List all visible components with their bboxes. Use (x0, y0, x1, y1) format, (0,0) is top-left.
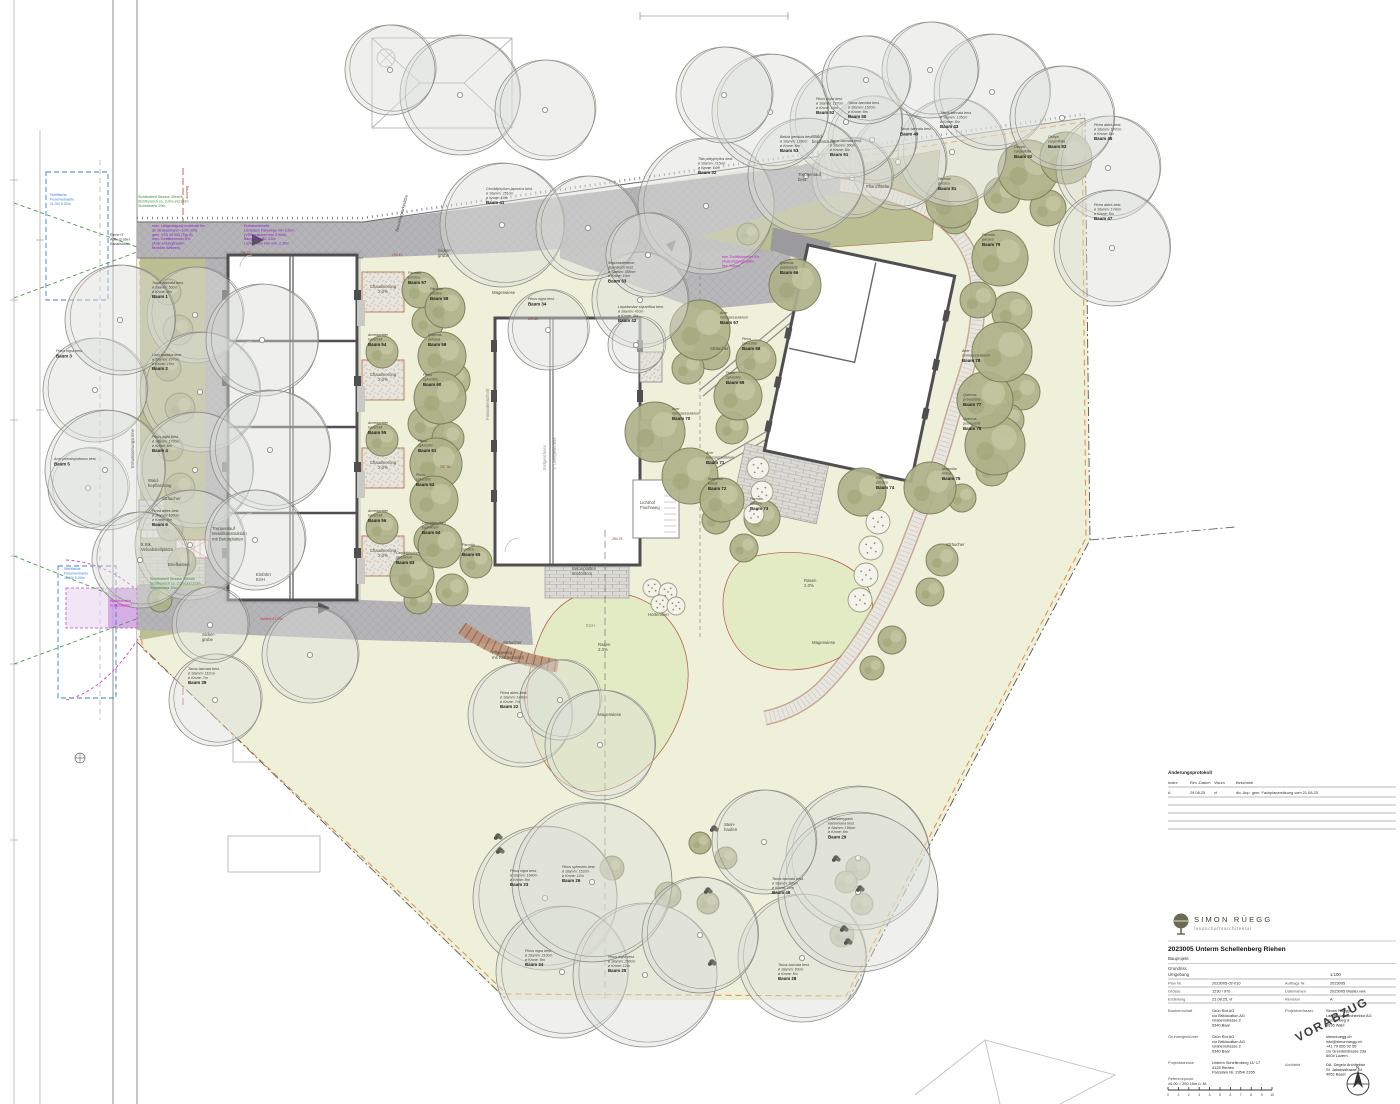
area-label: mit Rindenmulch (492, 655, 525, 660)
note-text: Sichtbereich ca. 3.0m und 3.0m (138, 199, 189, 203)
shrub-speckled (866, 510, 890, 534)
tree-trunk (92, 387, 97, 392)
area-label: bepflanzung (812, 139, 836, 144)
area-label: Veloabstellplätze (141, 547, 174, 552)
scale-number: 5 (1219, 1093, 1221, 1097)
note-text: Stellfläche (64, 567, 81, 571)
tree-species: Parrotia (938, 177, 951, 181)
tree-species: Pinus (726, 371, 735, 375)
shrub-speckled (859, 536, 883, 560)
field-value: 2023005 (1330, 981, 1345, 986)
note-text: (VSS erlauben min 2.90m) (244, 233, 286, 237)
tree-species: Parrotia (750, 497, 763, 501)
tree-number: Baum 68 (742, 346, 761, 351)
note-text: max. Gefällsbrecher 6% (152, 237, 191, 241)
tree-canopy-shade (433, 306, 445, 318)
logo-subtitle: landschaftsarchitektur (1194, 926, 1252, 931)
tree-species: ø Stamm: 107cm (152, 357, 179, 361)
note-text: Rinne O (110, 233, 123, 237)
tree-species: Pinus nigra best. (56, 349, 83, 353)
tree-canopy-shade (424, 395, 440, 411)
tree-species: Taxus baccata best. (848, 101, 880, 105)
field-value: 2023005 Master.vwx (1330, 989, 1366, 994)
tree-number: Baum 73 (750, 506, 769, 511)
tree-species: Pinus nigra best. (525, 949, 552, 953)
tree-number: Baum 74 (876, 485, 895, 490)
scale-number: 2 (1188, 1093, 1190, 1097)
tree-number: Baum 72 (708, 486, 727, 491)
note-text: (Ausrundungsradien (722, 259, 754, 263)
tree-canopy-shade (409, 599, 417, 607)
tree-number: Baum 54 (368, 342, 387, 347)
tree-number: Baum 23 (510, 882, 529, 887)
tree-species: Cercidiphyllum (396, 551, 420, 555)
area-label: 1. Obergeschoss (552, 438, 557, 470)
tree-species: ø Krone: 14m (816, 106, 838, 110)
tree-species: Acer (961, 349, 970, 353)
tree-species: ø Stamm: 148cm (500, 695, 527, 699)
tree-canopy-highlight (446, 427, 459, 440)
tree-canopy-highlight (696, 310, 721, 335)
tree-species: ø Stamm: 164cm (510, 873, 537, 877)
area-label: 50/40/3cm (572, 571, 592, 576)
tree-trunk (799, 955, 804, 960)
scale-number: 1 (1178, 1093, 1180, 1097)
tree-species: japonicum (395, 555, 412, 559)
tree-canopy-shade (372, 526, 382, 536)
tree-number: Baum 24 (525, 962, 544, 967)
party-label: Projektverfasser (1285, 1008, 1314, 1013)
tree-number: Baum 57 (408, 280, 427, 285)
tree-number: Baum 71 (706, 460, 725, 465)
revision-cell: 29.08.25 (1190, 790, 1205, 795)
tree-canopy-shade (932, 558, 942, 568)
tree-trunk (197, 389, 202, 394)
tree-species: ø Stamm: 112cm (188, 671, 215, 675)
tree-species: carpinifolia (1014, 149, 1031, 153)
tree-species: Parrotia (982, 233, 995, 237)
tree-trunk (207, 622, 212, 627)
revision-header: Index (1168, 780, 1178, 785)
tree-number: Baum 34 (528, 301, 547, 306)
tree-canopy-shade (636, 429, 654, 447)
scale-number: 6 (1230, 1093, 1232, 1097)
tree-canopy-shade (967, 298, 978, 309)
elevation-mark: 294.50 (528, 317, 538, 321)
tree-trunk (597, 742, 602, 747)
tree-species: sylvestris (423, 377, 438, 381)
shrub-speckled (848, 588, 872, 612)
tree-species: lamarckii (368, 337, 382, 341)
tree-species: ø Krone: 8m (940, 120, 960, 124)
note-text: ab Strassenrand +10% (9%) (152, 228, 197, 232)
tree-trunk (557, 697, 562, 702)
area-label: Sträucher (162, 496, 181, 501)
tree-number: Baum 26 (562, 878, 581, 883)
tree-number: Baum 64 (422, 530, 441, 535)
area-label: best. (798, 177, 807, 182)
tree-species: ø Stamm: 388cm (608, 270, 635, 274)
area-label: Magerwiese (598, 712, 622, 717)
tree-trunk (499, 222, 504, 227)
tree-species: Picea abies best. (500, 691, 527, 695)
tree-canopy-shade (708, 498, 721, 511)
project-phase: Bauprojekt (1168, 956, 1189, 961)
area-label: Sträucher (946, 542, 965, 547)
area-label: Sträucher (503, 640, 522, 645)
tree-number: Baum 32 (698, 170, 717, 175)
scale-number: 4 (1209, 1093, 1211, 1097)
tree-number: Baum 6 (152, 522, 168, 527)
area-label: bepflanzung (148, 483, 172, 488)
tree-number: Baum 79 (982, 242, 1001, 247)
tree-species: ø Stamm: 215cm (698, 161, 725, 165)
tree-number: Baum 63 (396, 560, 415, 565)
tree-species: ø Krone: 8m (525, 958, 545, 962)
tree-species: Parrotia (462, 543, 475, 547)
tree-canopy-shade (921, 591, 929, 599)
revision-header: Beschrieb (1236, 780, 1253, 785)
tree-species: Amelanchier (367, 509, 389, 513)
shrub-speckled (854, 563, 878, 587)
note-text: in Sichtweite? (110, 603, 132, 607)
tree-trunk (585, 225, 590, 230)
tree-species: pubescens (962, 397, 981, 401)
drawing-title-2: Umgebung (1168, 972, 1190, 977)
tree-species: ø Stamm: 83cm (772, 881, 797, 885)
tree-canopy-highlight (699, 836, 708, 845)
tree-canopy-shade (415, 422, 426, 433)
tree-canopy-shade (883, 639, 891, 647)
tree-species: Magnolia (708, 477, 723, 481)
elevation-mark: 298.27 (240, 251, 250, 255)
field-value: 21.08.25, vf (1212, 997, 1233, 1002)
tree-species: ø Stamm: 152cm (848, 105, 875, 109)
tree-trunk (589, 879, 594, 884)
tree-trunk (387, 67, 392, 72)
tree-trunk (633, 342, 638, 347)
note-text: Zufahrt 21.0% (260, 617, 283, 621)
tree-canopy-shade (983, 349, 1001, 367)
tree-canopy-shade (983, 255, 1000, 272)
tree-species: pubescens (779, 265, 798, 269)
note-text: Kanalisation (110, 242, 130, 246)
area-label: Fassadenschnitt (485, 388, 490, 420)
tree-species: Sequoiadendron (608, 261, 634, 265)
scale-number: 9 (1261, 1093, 1263, 1097)
tree-trunk (927, 67, 932, 72)
tree-trunk (545, 327, 550, 332)
tree-species: carpinifolia (1048, 139, 1065, 143)
tree-canopy-shade (409, 288, 420, 299)
tree-number: Baum 46 (1094, 136, 1113, 141)
area-label: haufen (724, 827, 738, 832)
note-text: Abfluss über (110, 237, 131, 241)
tree-number: Baum 22 (500, 704, 519, 709)
tree-species: ø Krone: 10m (152, 362, 174, 366)
tree-number: Baum 43 (940, 124, 959, 129)
tree-number: Baum 83 (1048, 144, 1067, 149)
shrub-speckled (643, 579, 661, 597)
tree-species: ø Krone: 8m (780, 144, 800, 148)
tree-number: Baum 5 (54, 461, 70, 466)
tree-number: Baum 48 (772, 890, 791, 895)
note-text: Baugesetz BS 3.5m (244, 237, 276, 241)
tree-species: ø Krone: 8m (830, 148, 850, 152)
tree-canopy-shade (427, 354, 441, 368)
area-label: mit Betonplatten (212, 536, 244, 541)
area-label: ESH (586, 623, 595, 628)
tree-species: Quercus (963, 417, 977, 421)
tree-number: Baum 77 (963, 402, 982, 407)
tree-number: Baum 4 (152, 448, 168, 453)
tree-number: Baum 69 (726, 380, 745, 385)
note-text: 11.00/ 5.00m (64, 576, 85, 580)
tree-number: Baum 60 (423, 382, 442, 387)
tree-species: Acer (671, 407, 680, 411)
tree-species: persica (749, 501, 762, 505)
tree-canopy-shade (865, 667, 872, 674)
tree-canopy-shade (735, 547, 743, 555)
tree-species: ø Krone: 4m (618, 314, 638, 318)
tree-canopy-shade (442, 588, 452, 598)
tree-canopy-highlight (890, 631, 902, 643)
area-label: Pflanzfläche (866, 184, 890, 189)
tree-species: ø Stamm: 100cm (152, 513, 179, 517)
note-text: Sichtbarkeit Strasse 30km/h (150, 577, 195, 581)
shrub-speckled (651, 595, 669, 613)
tree-species: ø Krone: 8m (848, 110, 868, 114)
tree-canopy-highlight (991, 425, 1016, 450)
tree-species: sylvestris (418, 443, 433, 447)
tree-species: persica (429, 291, 442, 295)
elevation-mark: 294.75 (612, 537, 622, 541)
note-text: Sichtbarkeit Strasse 30km/h (138, 195, 183, 199)
note-text: max. Längsneigung innerhalb 5m (152, 224, 205, 228)
scale-number: 3 (1198, 1093, 1200, 1097)
tree-canopy-shade (418, 320, 428, 330)
area-label: 2.0% (378, 465, 388, 470)
field-value: A (1330, 997, 1333, 1002)
area-label: 2.0% (378, 377, 388, 382)
tree-canopy-shade (678, 366, 688, 376)
tree-species: pubescens (962, 421, 981, 425)
tree-species: ø Krone: 8m (828, 830, 848, 834)
note-text: min. Gefällsbrecher 6% (722, 255, 760, 259)
field-value: 2023005-02-010 (1212, 981, 1241, 986)
field-label: Revision (1285, 997, 1300, 1002)
tree-species: ø Krone: 14m (698, 166, 720, 170)
tree-species: ø Krone: 10m (772, 886, 794, 890)
tree-number: Baum 81 (938, 186, 957, 191)
tree-canopy-shade (723, 394, 737, 408)
tree-species: sylvestris (742, 341, 757, 345)
field-label: Auftrags Nr. (1285, 981, 1306, 986)
tree-species: lamarckii (368, 513, 382, 517)
area-label: 2.0% (378, 289, 388, 294)
tree-number: Baum 55 (368, 430, 387, 435)
revision-header: Rev.-Datum (1190, 780, 1210, 785)
tree-species: ø Krone: 10m (486, 196, 508, 200)
tree-species: Quercus (780, 261, 794, 265)
tree-species: Pinus nigra best. (510, 869, 537, 873)
tree-species: Larix decidua best. (152, 353, 182, 357)
tree-species: Pinus nigra best. (608, 955, 635, 959)
tree-number: Baum 82 (1014, 154, 1033, 159)
tree-species: Pinus nigra best. (152, 435, 179, 439)
scale-number: 7 (1240, 1093, 1242, 1097)
tree-species: Parrotia (408, 271, 421, 275)
area-label: 2.0% (804, 583, 814, 588)
tree-trunk (721, 92, 726, 97)
tree-trunk (1109, 245, 1114, 250)
tree-trunk (697, 932, 702, 937)
tree-species: Acer (719, 311, 728, 315)
tree-number: Baum 25 (608, 968, 627, 973)
party-label: Grundeigentümer (1168, 1034, 1199, 1039)
tree-species: kobus (942, 471, 952, 475)
tree-number: Baum 39 (188, 680, 207, 685)
tree-trunk (267, 447, 272, 452)
tree-species: Taxus baccata best. (778, 963, 810, 967)
note-text: Stellfläche (50, 193, 67, 197)
tree-species: Ostrya (1048, 135, 1059, 139)
field-value: 1230 / 970 (1212, 989, 1231, 994)
area-label: Entwässerungsrinne (130, 428, 135, 468)
tree-species: Cercidiphyllum japonica best. (486, 187, 533, 191)
tree-canopy-highlight (982, 381, 1006, 405)
tree-species: petraea (427, 337, 440, 341)
note-text: Feuerwehrauto (64, 571, 88, 575)
tree-canopy-shade (1000, 310, 1012, 322)
tree-number: Baum 52 (816, 110, 835, 115)
tree-canopy-highlight (928, 583, 940, 595)
note-text: (Ausrundungsradien (152, 242, 184, 246)
tree-trunk (642, 972, 647, 977)
area-label: Sträucher (710, 346, 729, 351)
tree-number: Baum 61 (418, 448, 437, 453)
tree-canopy-shade (744, 358, 756, 370)
tree-species: Parrotia (430, 287, 443, 291)
tree-canopy-shade (466, 560, 476, 570)
tree-species: Pinus (423, 373, 432, 377)
tree-trunk (252, 537, 257, 542)
tree-species: Picea abies best. (1094, 123, 1121, 127)
tree-species: ø Stamm: 42cm (618, 309, 643, 313)
area-label: grube (438, 253, 450, 258)
tree-canopy-shade (426, 544, 439, 557)
scale-number: 0 (1167, 1093, 1169, 1097)
tree-species: Acer (705, 451, 714, 455)
tree-canopy-shade (693, 842, 700, 849)
tree-canopy-shade (372, 350, 382, 360)
tree-species: Liquidambar styraciflua best. (618, 305, 664, 309)
tree-canopy-highlight (1020, 380, 1035, 395)
tree-number: Baum 28 (778, 976, 797, 981)
tree-canopy-highlight (431, 484, 451, 504)
tree-species: Pinus (742, 337, 751, 341)
tree-trunk (259, 337, 264, 342)
tree-species: ø Krone: 12m (562, 874, 584, 878)
tree-canopy-shade (914, 485, 930, 501)
tree-number: Baum 66 (780, 270, 799, 275)
tree-species: Picea abies best. (152, 509, 179, 513)
tree-canopy-shade (1009, 167, 1027, 185)
tree-species: ø Krone: 7m (188, 676, 208, 680)
tree-species: lawsoniana best. (828, 821, 855, 825)
note-text: Einbahnverkehr (244, 224, 270, 228)
tree-species: persica (981, 237, 994, 241)
tree-species: ø Stamm: 174cm (1094, 207, 1121, 211)
area-label: ESH (256, 577, 265, 582)
tree-number: Baum 59 (428, 342, 447, 347)
tree-species: ø Stamm: 230cm (608, 959, 635, 963)
area-label: grube (202, 637, 214, 642)
tree-number: Baum 42 (618, 318, 637, 323)
tree-species: ø Stamm: 128cm (780, 139, 807, 143)
tree-species: persica (875, 480, 888, 484)
tree-number: Baum 33 (608, 279, 627, 284)
tree-trunk (645, 252, 650, 257)
tree-species: Chamaecyparis (828, 817, 853, 821)
tree-number: Baum 47 (1094, 216, 1113, 221)
tree-species: giganteum best. (608, 265, 634, 269)
tree-canopy-shade (722, 426, 732, 436)
logo-title: SIMON RÜEGG (1194, 915, 1272, 924)
tree-number: Baum 53 (780, 148, 799, 153)
tree-species: Taxus baccata best. (940, 111, 972, 115)
tree-species: Quercus (428, 333, 442, 337)
scale-number: 10 (1270, 1093, 1274, 1097)
tree-species: ø Krone: 8m (778, 972, 798, 976)
tree-species: ø Krone: 8m (510, 878, 530, 882)
scale-number: 8 (1250, 1093, 1252, 1097)
tree-trunk (137, 557, 142, 562)
tree-species: monspessulanum (706, 455, 734, 459)
party-label: Architekt (1285, 1062, 1301, 1067)
tree-canopy-highlight (940, 549, 953, 562)
tree-canopy-highlight (1046, 196, 1061, 211)
elevation-mark: 287.30 (440, 465, 450, 469)
scale-label: 1:100 (1330, 972, 1341, 977)
area-label: Briefkasten (168, 562, 190, 567)
note-text: Lichte Höhe hier min. 2.30m (244, 242, 289, 246)
tree-species: Amelanchier (367, 333, 389, 337)
tree-species: ø Krone: 12m (608, 964, 630, 968)
party-label: Bauherrschaft (1168, 1008, 1193, 1013)
tree-species: Taxus baccata best. (152, 281, 184, 285)
tree-species: ø Stamm: 210cm (525, 953, 552, 957)
tree-number: Baum 58 (430, 296, 449, 301)
tree-species: ø Stamm: 251cm (486, 191, 513, 195)
tree-species: ø Krone: 8m (152, 290, 172, 294)
tree-trunk (192, 467, 197, 472)
area-label: Magerwiese (492, 290, 516, 295)
tree-species: Acer pseudoplatanus best. (53, 457, 97, 461)
tree-number: Baum 2 (152, 366, 168, 371)
area-label: 2.0% (378, 553, 388, 558)
tree-species: ø Stamm: 127cm (816, 101, 843, 105)
tree-trunk (989, 89, 994, 94)
tree-species: Taxus baccata best. (900, 127, 932, 131)
area-label: Magerwiese (812, 640, 836, 645)
tree-canopy-shade (673, 473, 690, 490)
elevation-mark: 290.10 (392, 253, 402, 257)
tree-number: Baum 1 (152, 294, 168, 299)
tree-canopy-shade (847, 490, 861, 504)
field-label: Grösse (1168, 989, 1181, 994)
tree-species: ø Krone: 8m (152, 444, 172, 448)
